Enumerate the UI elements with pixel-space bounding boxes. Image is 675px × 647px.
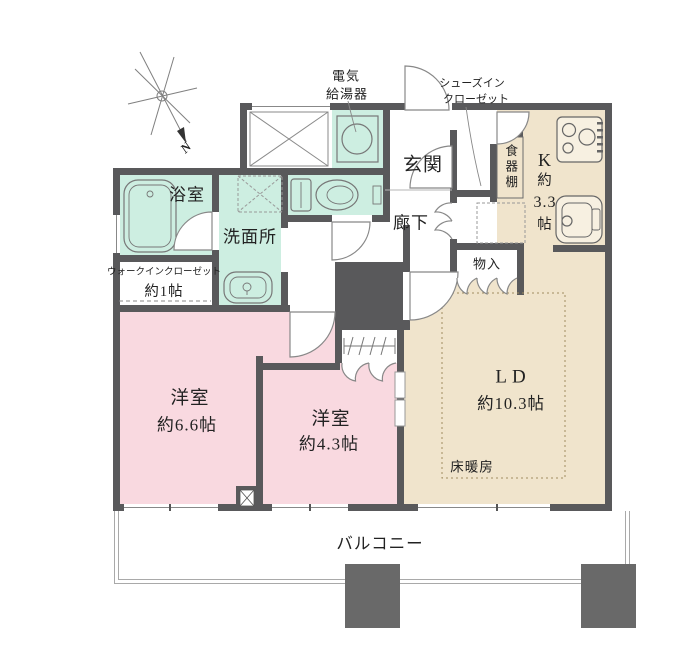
pipe-space-box [250,112,328,166]
bedroom-66-label: 洋室 [170,390,209,409]
shoes-closet-label-1: シューズイン [439,79,504,90]
corner-window-box [236,486,258,511]
window-bathroom [113,215,120,253]
window-bedroom43 [272,504,348,511]
pillar-right [581,564,636,628]
wic-size-label: 約1帖 [144,285,183,300]
balcony-label: バルコニー [336,536,423,553]
entrance-label: 玄関 [403,156,443,175]
hall-closet-bifold [435,203,452,239]
kitchen-sink-icon [556,196,602,243]
bedroom-66-size-label: 約6.6帖 [157,417,217,434]
toilet-floor [288,175,383,215]
kitchen-approx-label: 約 [537,174,553,189]
corridor-label: 廊下 [393,215,429,232]
water-heater-label-2: 給湯器 [326,88,368,101]
kitchen-unit-label: 帖 [537,218,553,233]
water-heater-label-1: 電気 [332,70,360,83]
bedroom-43-floor [263,363,397,504]
living-dining-size-label: 約10.3帖 [477,396,545,413]
pillar-left [345,564,400,628]
toilet-door [332,222,370,260]
balcony-pillars [345,564,636,628]
north-arrow [128,52,197,143]
kitchen-label: K [538,151,552,169]
window-bedroom66 [124,504,218,511]
shoes-closet-leader [466,107,481,186]
cupboard-label: 食器棚 [504,144,517,191]
window-top [252,103,330,110]
kitchen-entry-floor [524,243,553,252]
water-heater-floor [332,110,383,168]
living-dining-label: LD [495,368,530,387]
floor-heating-label: 床暖房 [450,460,494,474]
bathroom-label: 浴室 [169,187,205,204]
kitchen-size-label: 3.3 [534,195,557,211]
floor-plan: 浴室 洗面所 ウォークインクローゼット 約1帖 玄関 廊下 食器棚 K 約 3.… [0,0,675,647]
wic-label: ウォークインクローゼット [107,268,221,278]
shoes-closet-label-2: クローゼット [443,95,509,106]
washroom-label: 洗面所 [223,229,277,246]
window-living-dining [418,504,550,511]
bedroom-43-label: 洋室 [311,411,350,430]
stove-icon [557,117,603,162]
storage-label: 物入 [473,258,501,271]
bedroom-43-size-label: 約4.3帖 [299,436,359,453]
